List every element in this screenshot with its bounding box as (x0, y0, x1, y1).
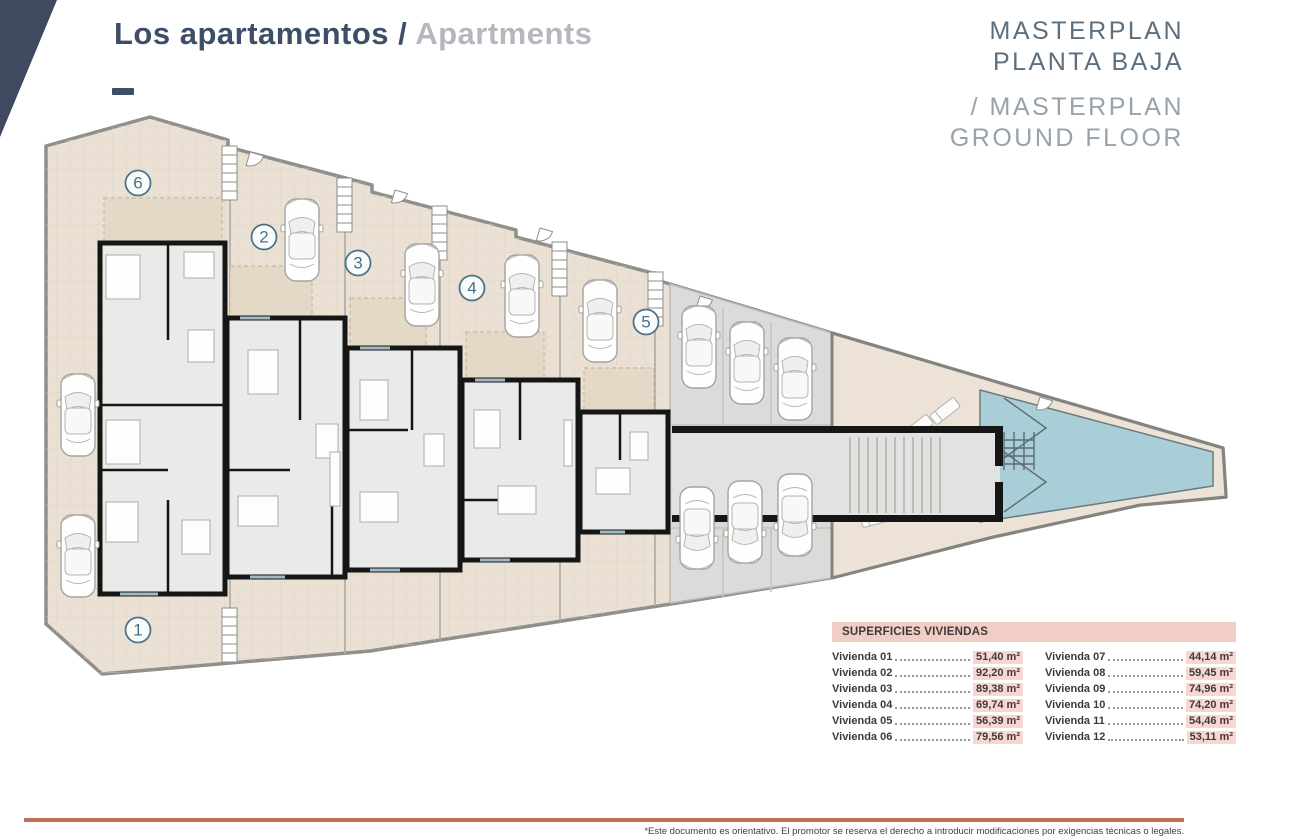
surface-value: 74,20 m² (1186, 699, 1236, 712)
dotted-leader (895, 723, 970, 725)
table-row: Vivienda 0974,96 m² (1045, 683, 1236, 696)
stairs-icon (337, 178, 352, 232)
surfaces-table-title: SUPERFICIES VIVIENDAS (832, 622, 1236, 642)
unit-number-badge-2: 2 (252, 225, 277, 250)
surface-value: 74,96 m² (1186, 683, 1236, 696)
corridor-stairs (672, 426, 1003, 522)
dotted-leader (895, 675, 970, 677)
car-icon (774, 338, 816, 420)
surface-value: 59,45 m² (1186, 667, 1236, 680)
disclaimer-text: *Este documento es orientativo. El promo… (644, 826, 1184, 837)
surface-value: 89,38 m² (973, 683, 1023, 696)
car-icon (579, 280, 621, 362)
surface-value: 79,56 m² (973, 731, 1023, 744)
table-row: Vivienda 0556,39 m² (832, 715, 1023, 728)
surface-value: 56,39 m² (973, 715, 1023, 728)
table-row: Vivienda 0292,20 m² (832, 667, 1023, 680)
brochure-page: Los apartamentos / Apartments MASTERPLAN… (0, 0, 1290, 840)
table-row: Vivienda 0744,14 m² (1045, 651, 1236, 664)
surfaces-column-1: Vivienda 0151,40 m² Vivienda 0292,20 m² … (832, 651, 1023, 747)
surface-value: 69,74 m² (973, 699, 1023, 712)
car-icon (57, 515, 99, 597)
table-row: Vivienda 1253,11 m² (1045, 731, 1236, 744)
unit-number-badge-6: 6 (126, 171, 151, 196)
dotted-leader (1108, 739, 1183, 741)
surfaces-table: SUPERFICIES VIVIENDAS Vivienda 0151,40 m… (832, 622, 1236, 747)
unit-number-label: 1 (133, 621, 142, 640)
footer-accent-line (24, 818, 1184, 822)
table-row: Vivienda 1074,20 m² (1045, 699, 1236, 712)
unit-number-label: 4 (467, 279, 476, 298)
unit-number-label: 2 (259, 228, 268, 247)
surface-value: 51,40 m² (973, 651, 1023, 664)
dotted-leader (1108, 707, 1183, 709)
car-icon (57, 374, 99, 456)
dotted-leader (1108, 723, 1183, 725)
dotted-leader (895, 691, 970, 693)
dotted-leader (895, 707, 970, 709)
car-icon (678, 306, 720, 388)
car-icon (726, 322, 768, 404)
dotted-leader (1108, 675, 1183, 677)
unit-number-badge-4: 4 (460, 276, 485, 301)
surface-value: 92,20 m² (973, 667, 1023, 680)
unit-number-label: 3 (353, 254, 362, 273)
stairs-icon (222, 146, 237, 200)
unit-number-label: 6 (133, 174, 142, 193)
table-row: Vivienda 0389,38 m² (832, 683, 1023, 696)
table-row: Vivienda 1154,46 m² (1045, 715, 1236, 728)
surface-value: 53,11 m² (1187, 731, 1236, 744)
stairs-icon (552, 242, 567, 296)
car-icon (401, 244, 443, 326)
table-row: Vivienda 0469,74 m² (832, 699, 1023, 712)
table-row: Vivienda 0151,40 m² (832, 651, 1023, 664)
car-icon (676, 487, 718, 569)
unit-number-badge-3: 3 (346, 251, 371, 276)
surface-value: 54,46 m² (1186, 715, 1236, 728)
car-icon (281, 199, 323, 281)
unit-number-badge-1: 1 (126, 618, 151, 643)
table-row: Vivienda 0679,56 m² (832, 731, 1023, 744)
car-icon (724, 481, 766, 563)
dotted-leader (895, 739, 970, 741)
surfaces-column-2: Vivienda 0744,14 m² Vivienda 0859,45 m² … (1045, 651, 1236, 747)
table-row: Vivienda 0859,45 m² (1045, 667, 1236, 680)
unit-number-label: 5 (641, 313, 650, 332)
dotted-leader (1108, 659, 1183, 661)
dotted-leader (895, 659, 970, 661)
surface-value: 44,14 m² (1186, 651, 1236, 664)
dotted-leader (1108, 691, 1183, 693)
car-icon (501, 255, 543, 337)
stairs-icon (222, 608, 237, 662)
car-icon (774, 474, 816, 556)
unit-number-badge-5: 5 (634, 310, 659, 335)
